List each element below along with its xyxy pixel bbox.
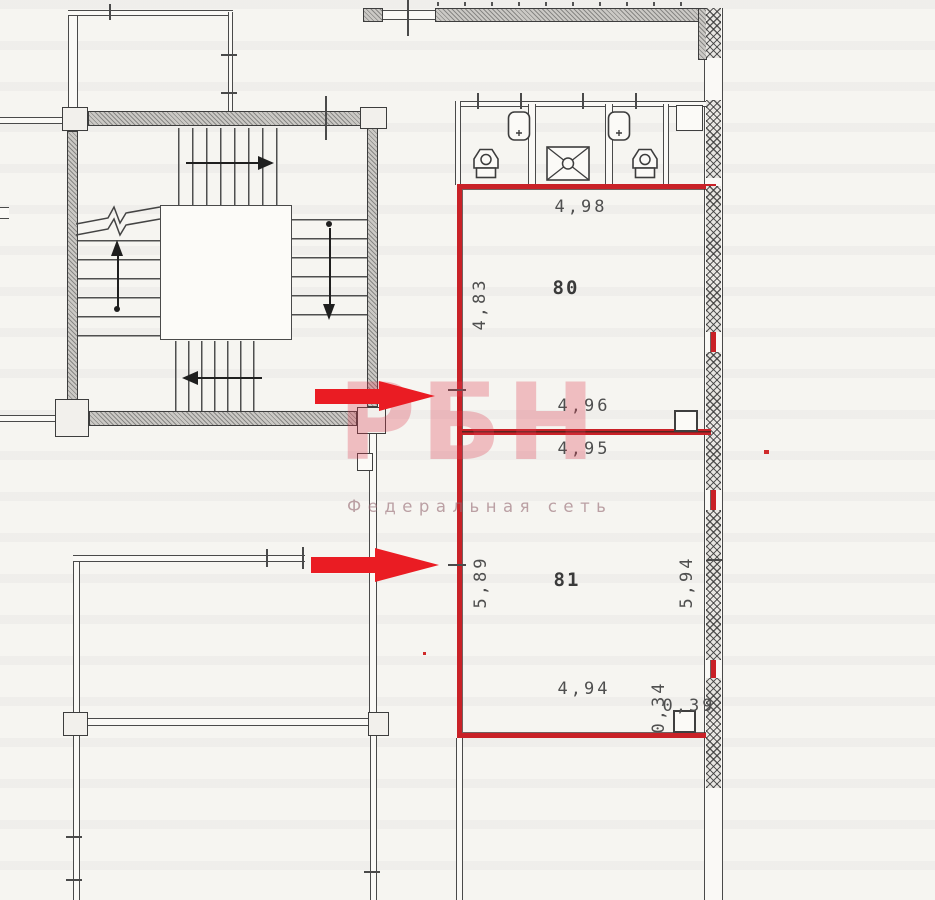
watermark-tagline: Федеральная сеть	[347, 497, 612, 516]
window-tick	[325, 96, 327, 140]
dimension-label: 0,39	[659, 696, 719, 716]
doorway-square	[674, 410, 698, 432]
wall-tick	[266, 549, 268, 567]
duct-box-icon	[676, 105, 703, 131]
wall-tick	[707, 559, 723, 561]
stair-arrow-line	[117, 254, 119, 310]
dimension-label: 4,94	[554, 679, 614, 699]
wall-right-hatch	[706, 100, 721, 178]
wall-tick	[582, 93, 584, 109]
wall-bath-partition	[663, 104, 669, 185]
scan-artifact-dot	[423, 652, 426, 655]
wall-lowroom-top	[73, 555, 305, 562]
stair-arrow-line	[190, 377, 262, 379]
wall-stair-left	[67, 131, 78, 401]
column	[63, 712, 88, 736]
red-arrow-lower	[311, 548, 439, 582]
floor-plan-canvas: 4,98 4,83 80 4,96 4,95 5,89 5,94 81 4,94…	[0, 0, 935, 900]
left-arrow-icon	[182, 371, 198, 385]
wall-right-hatch	[706, 186, 721, 332]
stair-landing	[160, 205, 292, 340]
column	[368, 712, 389, 736]
wall-topleft-room-left	[68, 10, 78, 112]
wall-tick	[66, 879, 82, 881]
wall-tick	[448, 564, 466, 566]
wall-tick	[407, 0, 409, 36]
wall-right-hatch	[706, 8, 721, 58]
wall-tick	[221, 92, 237, 94]
wall-top-segment	[363, 8, 383, 22]
wall-bath-top	[455, 101, 713, 107]
stair-arrow-line	[329, 228, 331, 306]
shower-tray-icon	[545, 145, 591, 182]
toilet-icon	[630, 146, 660, 180]
wall-stair-top	[88, 111, 364, 126]
wall-stair-bottom	[89, 411, 357, 426]
wall-left-stub-upper	[0, 117, 64, 124]
wall-right-hatch	[706, 510, 721, 660]
column-tick-row	[437, 2, 700, 6]
wall-tick	[364, 871, 380, 873]
wall-tick	[477, 93, 479, 109]
right-arrow-icon	[258, 156, 274, 170]
wall-bath-left	[455, 101, 461, 185]
arrow-origin-dot	[326, 221, 332, 227]
wall-lowroom-left	[73, 562, 80, 713]
column	[55, 399, 89, 437]
wall-topleft-room-right	[228, 12, 233, 112]
dimension-label: 5,94	[677, 552, 697, 612]
wall-topleft-room-top	[68, 10, 233, 16]
wall-lowroom-mid	[88, 718, 370, 726]
wall-tick	[66, 836, 82, 838]
down-arrow-icon	[323, 304, 335, 320]
wall-tick	[221, 54, 237, 56]
wall-tick	[302, 547, 304, 569]
column	[360, 107, 387, 129]
wall-tick	[109, 4, 111, 20]
sink-icon	[506, 110, 532, 142]
up-arrow-icon	[111, 240, 123, 256]
sink-icon	[606, 110, 632, 142]
arrow-origin-dot	[114, 306, 120, 312]
wall-right-hatch	[706, 352, 721, 490]
dimension-label: 4,98	[551, 197, 611, 217]
column	[62, 107, 88, 131]
dimension-label: 4,83	[470, 274, 490, 334]
wall-lowroom-left-lower	[73, 736, 80, 900]
red-arrow-upper	[315, 381, 435, 411]
wall-lowroom-right-lower	[370, 736, 377, 900]
wall-below-highlight	[456, 738, 463, 900]
wall-top-main	[435, 8, 700, 22]
scan-artifact-dot	[764, 450, 769, 454]
wall-left-stub-small	[0, 207, 9, 219]
room-number: 80	[536, 277, 596, 299]
toilet-icon	[471, 146, 501, 180]
wall-tick	[635, 93, 637, 109]
wall-left-stub-lower	[0, 415, 55, 422]
room-number: 81	[537, 569, 597, 591]
dimension-label: 5,89	[471, 552, 491, 612]
wall-top-thin	[383, 10, 435, 20]
break-line-icon	[76, 202, 162, 242]
wall-tick	[520, 93, 522, 109]
wall-right-hatch	[706, 678, 721, 788]
